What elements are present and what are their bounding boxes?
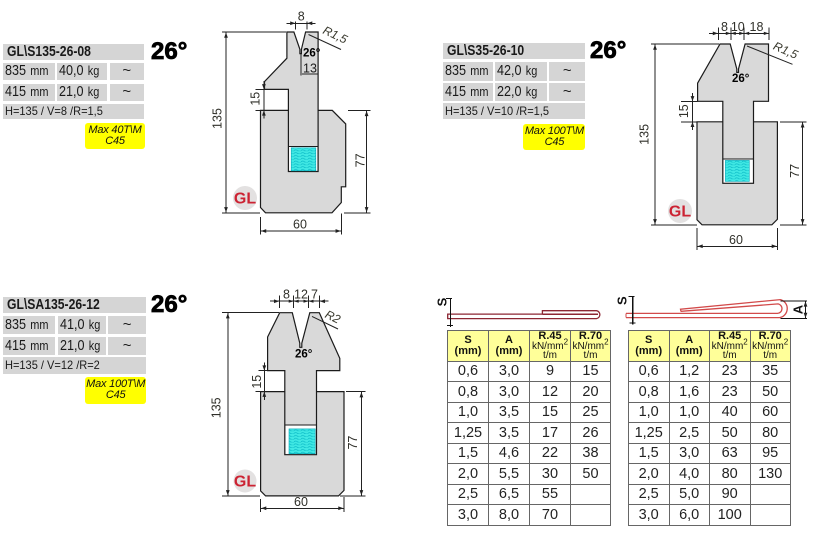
svg-text:135: 135: [210, 397, 224, 418]
svg-text:GL: GL: [669, 204, 691, 221]
svg-text:S: S: [615, 296, 630, 305]
svg-text:R2: R2: [323, 307, 343, 326]
svg-text:15: 15: [249, 92, 263, 106]
svg-text:135: 135: [211, 108, 225, 129]
svg-text:13: 13: [303, 62, 317, 76]
svg-text:8: 8: [283, 288, 290, 302]
svg-text:15: 15: [250, 375, 264, 389]
svg-text:77: 77: [788, 164, 802, 178]
svg-text:8: 8: [721, 20, 728, 34]
svg-text:77: 77: [346, 436, 360, 450]
svg-text:7: 7: [311, 288, 318, 302]
svg-text:R1,5: R1,5: [321, 23, 350, 47]
svg-text:135: 135: [638, 124, 652, 145]
svg-text:8: 8: [298, 10, 305, 24]
svg-text:GL: GL: [234, 474, 256, 491]
svg-text:77: 77: [354, 153, 368, 167]
svg-text:15: 15: [677, 104, 691, 118]
svg-text:60: 60: [294, 495, 308, 509]
svg-text:R1,5: R1,5: [771, 39, 800, 62]
svg-text:26°: 26°: [732, 73, 750, 85]
svg-text:10: 10: [731, 20, 745, 34]
svg-text:S: S: [435, 297, 450, 306]
svg-text:60: 60: [293, 218, 307, 232]
svg-text:26°: 26°: [295, 349, 313, 361]
svg-text:18: 18: [750, 20, 764, 34]
svg-text:26°: 26°: [303, 48, 321, 60]
svg-text:60: 60: [729, 233, 743, 247]
svg-text:A: A: [791, 304, 806, 314]
svg-text:GL: GL: [234, 191, 256, 208]
svg-text:12: 12: [294, 288, 308, 302]
